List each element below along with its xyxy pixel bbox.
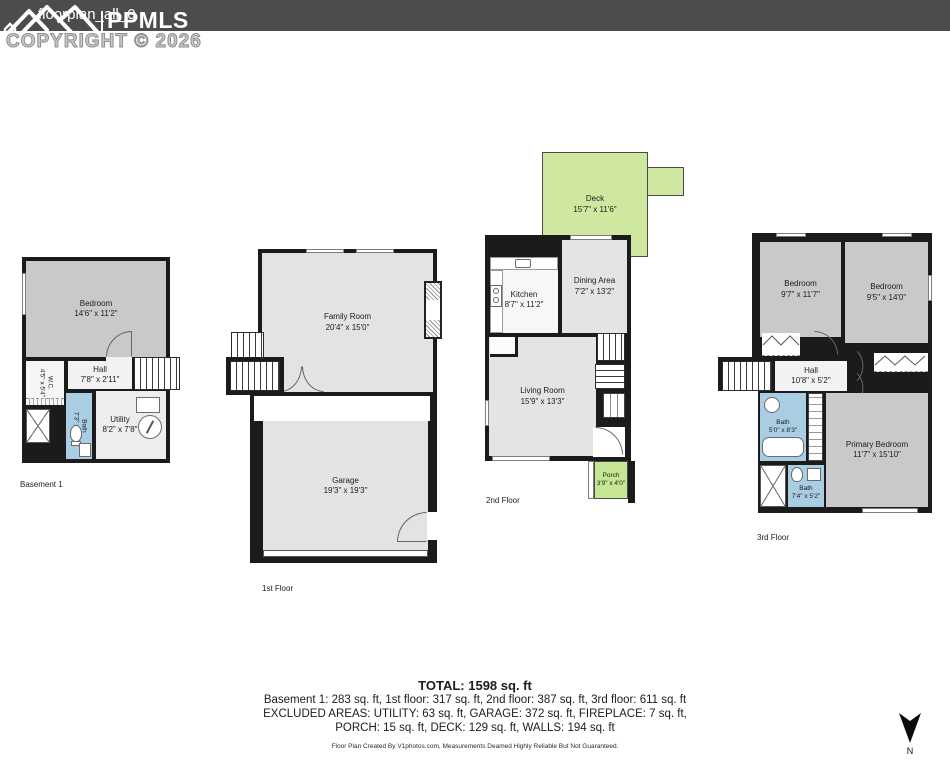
room-dims: 9'5" x 14'0": [867, 293, 906, 303]
room-label: Primary Bedroom 11'7" x 15'10": [846, 440, 908, 461]
room-label: Dining Area 7'2" x 13'2": [574, 276, 615, 297]
room-name: Bath: [799, 485, 812, 493]
room-name: Porch: [603, 472, 620, 480]
room-dims: 9'7" x 11'7": [781, 290, 820, 300]
copyright-text: COPYRIGHT © 2026: [6, 31, 202, 53]
window: [776, 233, 806, 237]
bathtub-icon: [762, 437, 804, 457]
door-opening: [427, 512, 437, 540]
closet-rod-icon: [762, 334, 800, 346]
third-floor-label: 3rd Floor: [757, 533, 789, 542]
porch-wall: [628, 461, 635, 503]
room-name: Bedroom: [80, 299, 112, 309]
room-label: Utility 8'2" x 7'8": [103, 415, 138, 436]
window: [306, 249, 344, 253]
room-label: Bath 5'0" x 8'3": [769, 419, 797, 436]
room-dims: 10'8" x 5'2": [791, 376, 830, 386]
room-bedroom-left: Bedroom 9'7" x 11'7": [760, 242, 841, 337]
room-bedroom-right: Bedroom 9'5" x 14'0": [845, 242, 928, 343]
logo-divider: [101, 11, 103, 32]
closet: [762, 333, 800, 356]
room-basement-bedroom: Bedroom 14'6" x 11'2": [26, 261, 166, 357]
room-dims: 7'2" x 13'2": [575, 287, 614, 297]
room-dims: 5'0" x 8'3": [769, 427, 797, 435]
room-dims: 15'7" x 11'6": [573, 205, 616, 215]
stairwell: [226, 357, 284, 395]
furnace-icon: [26, 409, 50, 443]
room-name: Bedroom: [870, 282, 902, 292]
burner-icon: [493, 288, 499, 294]
closet-rod-icon: [874, 354, 928, 366]
room-name: Deck: [586, 194, 604, 204]
closet: [603, 393, 625, 418]
room-name: Hall: [93, 365, 107, 375]
outside-notch: [718, 233, 752, 357]
third-floor-block: Bedroom 9'7" x 11'7" Bedroom 9'5" x 14'0…: [718, 233, 932, 513]
water-heater-icon: [136, 397, 160, 413]
room-basement-wc: W.C. 4'5" x 5'4": [26, 361, 64, 405]
second-floor-label: 2nd Floor: [486, 496, 520, 505]
room-dims: 3'9" x 4'0": [597, 480, 625, 488]
fireplace-icon: [424, 281, 442, 339]
sink-icon: [764, 397, 780, 413]
room-dims: 7'4" x 5'2": [792, 493, 820, 501]
room-dims: 11'7" x 15'10": [853, 450, 901, 460]
room-label: Bedroom 14'6" x 11'2": [74, 299, 117, 320]
sink-icon: [79, 443, 91, 457]
toilet-icon: [70, 425, 82, 442]
stairs: [722, 361, 772, 391]
closet-icon: [760, 465, 786, 507]
room-label: W.C. 4'5" x 5'4": [37, 369, 54, 397]
stairs: [230, 361, 280, 391]
room-name: Hall: [804, 366, 818, 376]
room-name: Kitchen: [511, 290, 538, 300]
stairs: [231, 332, 264, 359]
floor-areas-text: Basement 1: 283 sq. ft, 1st floor: 317 s…: [0, 693, 950, 707]
room-name: Garage: [332, 476, 359, 486]
stairs: [595, 364, 625, 389]
area-summary: TOTAL: 1598 sq. ft Basement 1: 283 sq. f…: [0, 679, 950, 735]
room-name: Dining Area: [574, 276, 615, 286]
compass-north-icon: [898, 712, 922, 744]
window: [882, 233, 912, 237]
sink-icon: [807, 468, 821, 481]
brand-text: PPMLS: [107, 7, 189, 34]
room-dims: 8'7" x 11'2": [505, 300, 544, 310]
room-dims: 20'4" x 15'0": [326, 323, 370, 333]
outside-notch: [718, 391, 758, 513]
room-primary-bedroom: Primary Bedroom 11'7" x 15'10": [826, 393, 928, 507]
room-dims: 7'8" x 2'11": [81, 375, 120, 385]
room-name: Bedroom: [784, 279, 816, 289]
excluded-areas-text2: PORCH: 15 sq. ft, DECK: 129 sq. ft, WALL…: [0, 721, 950, 735]
deck-extension: [646, 167, 684, 196]
compass-label: N: [898, 746, 922, 756]
room-name: Family Room: [324, 312, 371, 322]
room-third-hall: Hall 10'8" x 5'2": [775, 361, 847, 391]
window: [22, 273, 26, 315]
floorplan-page: floorplan_all_0 PPMLS COPYRIGHT © 2026 B…: [0, 0, 950, 768]
stairs: [134, 357, 180, 390]
garage-door: [263, 550, 428, 557]
window: [928, 275, 932, 301]
sink-icon: [515, 259, 531, 268]
excluded-areas-text: EXCLUDED AREAS: UTILITY: 63 sq. ft, GARA…: [0, 707, 950, 721]
room-name: W.C.: [45, 376, 53, 390]
room-dims: 14'6" x 11'2": [74, 309, 117, 319]
garage-entry-gap: [254, 396, 430, 421]
fireplace-hatch: [426, 320, 440, 337]
room-name: Bath: [776, 419, 789, 427]
room-basement-hall: Hall 7'8" x 2'11": [68, 361, 132, 389]
window: [492, 456, 550, 461]
room-dims: 15'9" x 13'3": [521, 397, 565, 407]
window: [356, 249, 394, 253]
total-area-text: TOTAL: 1598 sq. ft: [0, 679, 950, 693]
room-label: Hall 10'8" x 5'2": [791, 366, 830, 387]
room-name: Primary Bedroom: [846, 440, 908, 450]
room-porch: Porch 3'9" x 4'0": [594, 461, 628, 499]
stairs: [597, 333, 625, 361]
window: [862, 508, 918, 513]
room-label: Porch 3'9" x 4'0": [597, 472, 625, 489]
room-label: Bedroom 9'5" x 14'0": [867, 282, 906, 303]
room-label: Family Room 20'4" x 15'0": [324, 312, 371, 333]
room-dims: 4'5" x 5'4": [37, 369, 45, 397]
first-floor-label: 1st Floor: [262, 584, 293, 593]
burner-icon: [493, 297, 499, 303]
room-label: Living Room 15'9" x 13'3": [520, 386, 564, 407]
room-dims: 19'3" x 19'3": [324, 486, 368, 496]
room-label: Garage 19'3" x 19'3": [324, 476, 368, 497]
room-dims: 8'2" x 7'8": [103, 425, 138, 435]
linen-closet: [808, 393, 823, 461]
basement-label: Basement 1: [20, 480, 63, 489]
room-name: Utility: [110, 415, 130, 425]
pantry-closet: [490, 337, 518, 357]
toilet-icon: [791, 467, 803, 482]
closet: [874, 353, 928, 372]
room-dining-area: Dining Area 7'2" x 13'2": [562, 240, 627, 333]
fireplace-hatch: [426, 283, 440, 300]
room-label: Deck 15'7" x 11'6": [573, 194, 616, 215]
room-label: Hall 7'8" x 2'11": [81, 365, 120, 386]
room-label: Bath 7'4" x 5'2": [792, 485, 820, 502]
room-label: Kitchen 8'7" x 11'2": [505, 290, 544, 311]
first-floor-family-block: Family Room 20'4" x 15'0": [258, 249, 437, 396]
second-floor-block: Dining Area 7'2" x 13'2" Kitchen 8'7" x …: [485, 235, 631, 461]
room-label: Bedroom 9'7" x 11'7": [781, 279, 820, 300]
sliding-door: [570, 235, 612, 240]
closet-shelf-marks: [26, 398, 64, 405]
window: [485, 400, 489, 426]
basement-plan: Bedroom 14'6" x 11'2" W.C. 4'5" x 5'4" H…: [22, 257, 170, 463]
credit-text: Floor Plan Created By V1photos.com, Meas…: [0, 743, 950, 750]
room-name: Living Room: [520, 386, 564, 396]
first-floor-garage-block: Garage 19'3" x 19'3": [250, 392, 437, 563]
